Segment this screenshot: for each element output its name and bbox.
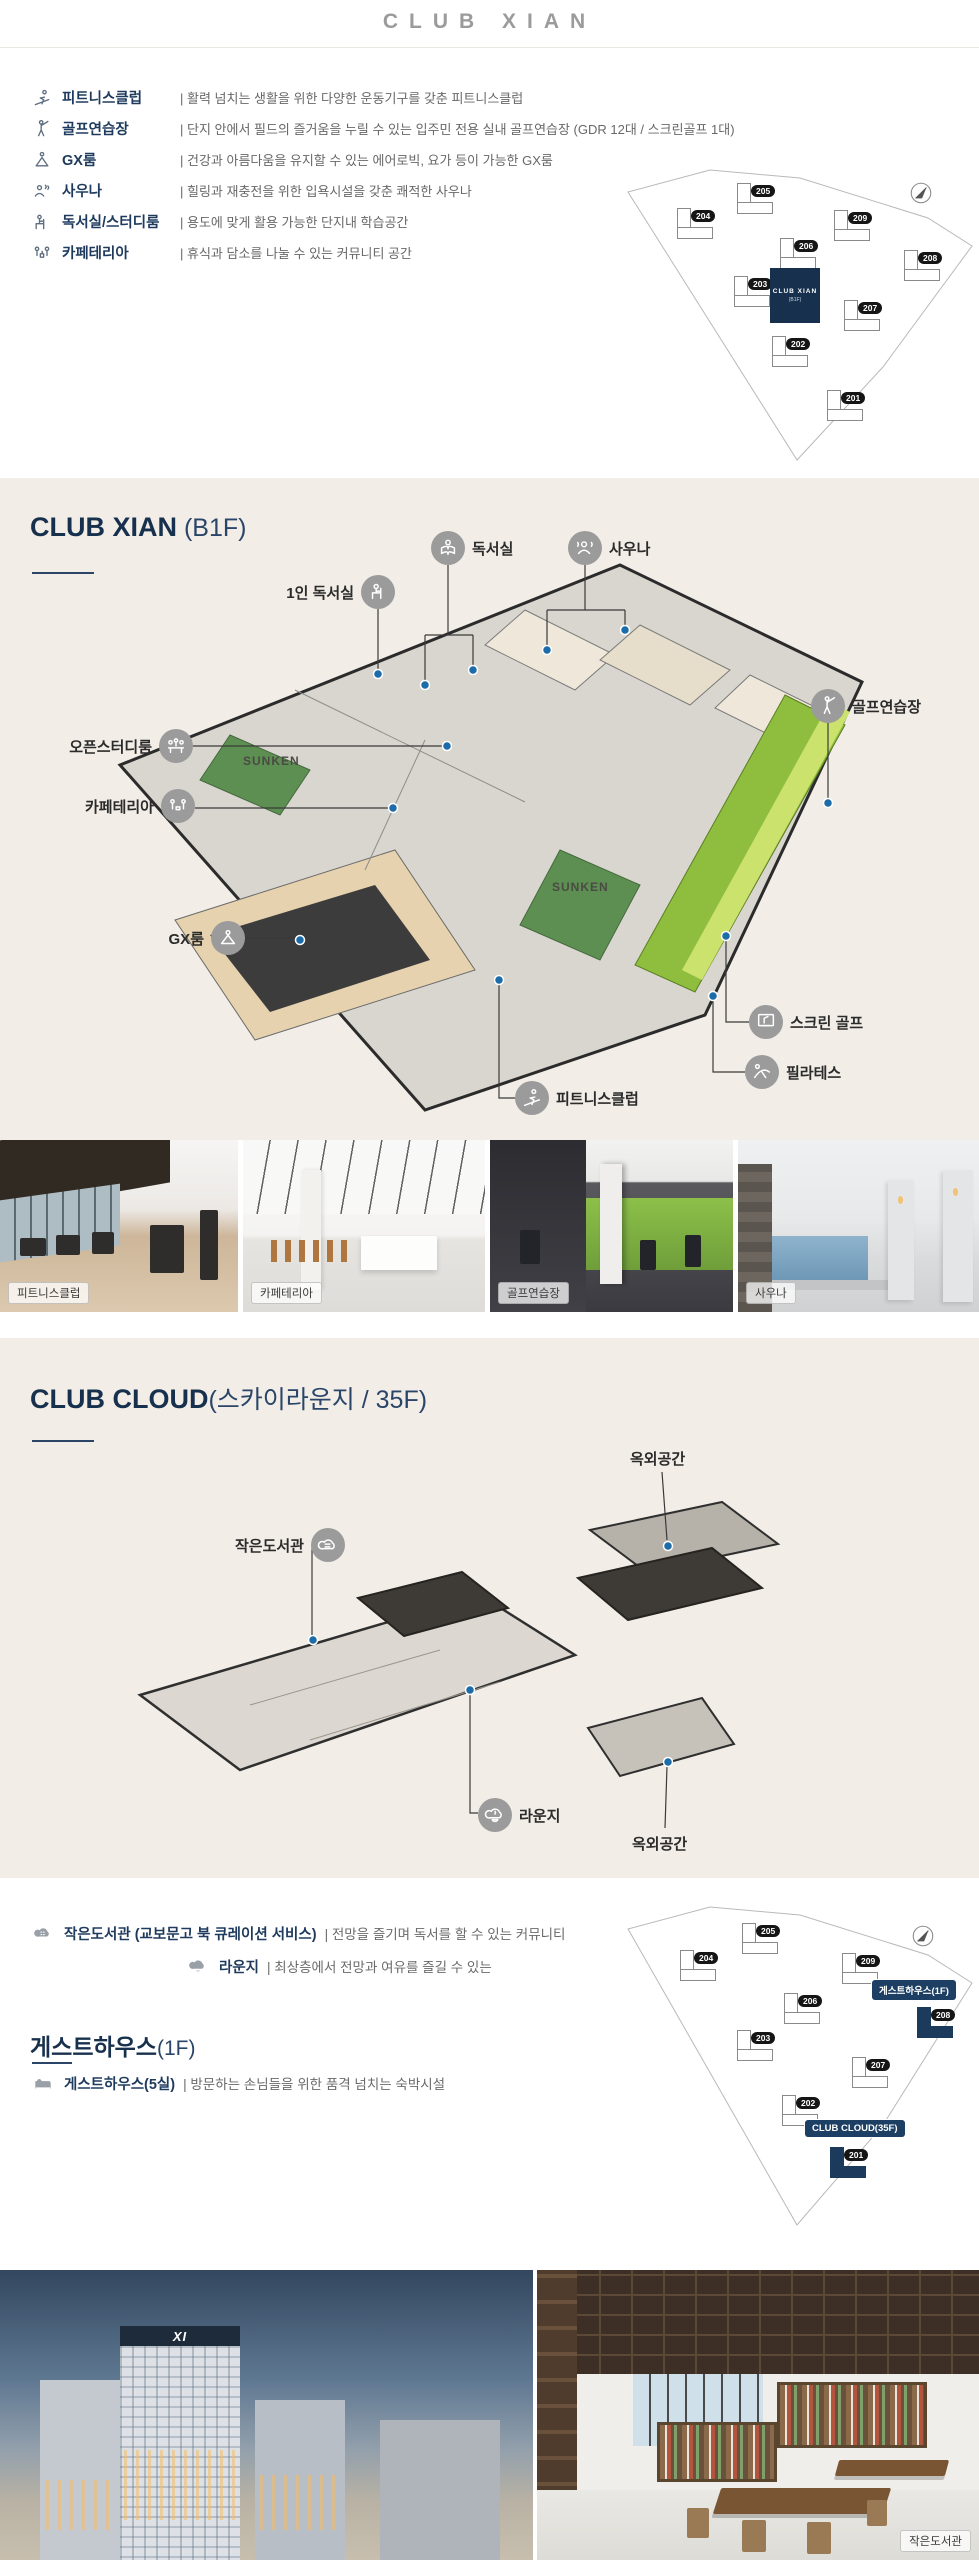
- info-label: 라운지: [219, 1956, 259, 1977]
- building-marker: 209: [832, 210, 878, 242]
- club-block-label: CLUB XIAN: [773, 288, 817, 295]
- photo-caption: 작은도서관: [900, 2530, 971, 2552]
- coffered-ceiling: [537, 2270, 979, 2374]
- info-desc: | 최상층에서 전망과 여유를 즐길 수 있는: [267, 1956, 492, 1976]
- study-icon: [30, 211, 54, 233]
- golf-icon: [30, 118, 54, 140]
- title-underline: [32, 572, 94, 574]
- photo-caption: 카페테리아: [251, 1282, 322, 1304]
- yoga-icon: [30, 149, 54, 171]
- lounge-icon: [478, 1798, 512, 1832]
- photo-caption: 골프연습장: [498, 1282, 569, 1304]
- amenity-desc: | 용도에 맞게 활용 가능한 단지내 학습공간: [180, 212, 408, 231]
- amenity-desc: | 단지 안에서 필드의 즐거움을 누릴 수 있는 입주민 전용 실내 골프연습…: [180, 119, 735, 138]
- building-wing: [40, 2380, 120, 2560]
- callout-cafeteria: 카페테리아: [85, 789, 195, 823]
- fitness-icon: [30, 87, 54, 109]
- building-marker: 205: [735, 183, 781, 215]
- compass-icon: [910, 1923, 936, 1949]
- fitness-icon: [515, 1081, 549, 1115]
- callout-sauna: 사우나: [568, 531, 650, 565]
- callout-lounge: 라운지: [478, 1798, 560, 1832]
- section-title-main: 게스트하우스: [30, 2034, 157, 2060]
- gym-equipment: [150, 1225, 184, 1273]
- building-marker: 203: [735, 2030, 781, 2062]
- callout-screen-golf: 스크린 골프: [749, 1005, 863, 1039]
- callout-pilates: 필라테스: [745, 1055, 841, 1089]
- amenity-row-cafe: 카페테리아 | 휴식과 담소를 나눌 수 있는 커뮤니티 공간: [30, 237, 670, 268]
- lit-windows: [124, 2450, 236, 2520]
- photo-golf-range: 골프연습장: [490, 1140, 733, 1312]
- section-title-cloud: CLUB CLOUD(스카이라운지 / 35F): [30, 1380, 427, 1416]
- bookshelf: [657, 2422, 777, 2482]
- club-xian-block: CLUB XIAN (B1F): [770, 268, 820, 323]
- small-library-icon: [30, 1922, 56, 1944]
- building-marker: 204: [678, 1950, 724, 1982]
- amenity-desc: | 힐링과 재충전을 위한 입욕시설을 갖춘 쾌적한 사우나: [180, 181, 472, 200]
- amenity-row-study: 독서실/스터디룸 | 용도에 맞게 활용 가능한 단지내 학습공간: [30, 206, 670, 237]
- gym-equipment: [92, 1232, 114, 1254]
- building-marker: 204: [675, 208, 721, 240]
- tower-crown: XI: [120, 2326, 240, 2346]
- guesthouse-badge: 게스트하우스(1F): [872, 1980, 956, 2000]
- section-title-main: CLUB CLOUD: [30, 1384, 208, 1414]
- amenity-list: 피트니스클럽 | 활력 넘치는 생활을 위한 다양한 운동기구를 갖춘 피트니스…: [30, 82, 670, 268]
- cafe-icon: [30, 242, 54, 264]
- amenity-label: GX룸: [62, 149, 180, 170]
- sauna-icon: [30, 180, 54, 202]
- chair: [742, 2520, 766, 2552]
- info-row-guesthouse: 게스트하우스(5실) | 방문하는 손님들을 위한 품격 넘치는 숙박시설: [30, 2072, 445, 2094]
- bed-icon: [30, 2072, 56, 2094]
- photo-sauna: 사우나: [738, 1140, 979, 1312]
- partition-wall: [943, 1170, 973, 1302]
- building-marker: 207: [850, 2057, 896, 2089]
- xi-logo: XI: [173, 2329, 187, 2344]
- page-title: CLUB XIAN: [0, 10, 979, 34]
- label-outdoor-bottom: 옥외공간: [632, 1833, 687, 1854]
- section-title-main: CLUB XIAN: [30, 512, 177, 542]
- club-block-sub: (B1F): [789, 297, 802, 303]
- section-title-sub: (B1F): [177, 514, 246, 542]
- section-title-sub: (1F): [157, 2037, 196, 2060]
- callout-fitness: 피트니스클럽: [515, 1081, 639, 1115]
- pilates-icon: [745, 1055, 779, 1089]
- photo-caption: 피트니스클럽: [8, 1282, 89, 1304]
- chair: [807, 2522, 831, 2554]
- pillar: [301, 1170, 321, 1290]
- sitemap-club-xian: 205 204 209 206 208 203 CLUB XIAN (B1F) …: [620, 168, 978, 480]
- building-marker: 207: [842, 300, 888, 332]
- title-underline: [32, 1440, 94, 1442]
- info-label: 작은도서관 (교보문고 북 큐레이션 서비스): [64, 1923, 317, 1944]
- photo-caption: 사우나: [746, 1282, 796, 1304]
- amenity-label: 사우나: [62, 180, 180, 201]
- photo-building-exterior: XI: [0, 2270, 533, 2560]
- floorplan-b1f: [95, 540, 885, 1140]
- floorplan-cloud: [110, 1440, 830, 1860]
- info-desc: | 방문하는 손님들을 위한 품격 넘치는 숙박시설: [183, 2073, 445, 2093]
- site-boundary: [620, 168, 978, 480]
- golf-range-icon: [811, 689, 845, 723]
- amenity-label: 골프연습장: [62, 118, 180, 139]
- amenity-label: 독서실/스터디룸: [62, 211, 180, 232]
- wall-lamp: [953, 1188, 958, 1196]
- section-title-guesthouse: 게스트하우스(1F): [30, 2028, 195, 2062]
- photo-fitness: 피트니스클럽: [0, 1140, 238, 1312]
- lounge-icon: [185, 1955, 211, 1977]
- building-marker: 205: [740, 1923, 786, 1955]
- bookshelf: [777, 2382, 927, 2448]
- building-marker: 206: [782, 1993, 828, 2025]
- gym-equipment: [20, 1238, 46, 1256]
- section-title-sub: (스카이라운지 / 35F): [208, 1386, 427, 1414]
- club-cloud-badge: CLUB CLOUD(35F): [805, 2120, 905, 2137]
- info-row-library: 작은도서관 (교보문고 북 큐레이션 서비스) | 전망을 즐기며 독서를 할 …: [30, 1922, 565, 1944]
- amenity-row-fitness: 피트니스클럽 | 활력 넘치는 생활을 위한 다양한 운동기구를 갖춘 피트니스…: [30, 82, 670, 113]
- building-marker-highlight: 208: [915, 2007, 961, 2039]
- building-tower: XI: [120, 2326, 240, 2560]
- golf-bay: [640, 1240, 656, 1270]
- compass-icon: [908, 180, 934, 206]
- table: [835, 2460, 949, 2476]
- callout-reading-room: 독서실: [431, 531, 513, 565]
- lit-windows: [260, 2475, 340, 2530]
- callout-gx-room: GX룸: [169, 921, 245, 955]
- callout-single-reading: 1인 독서실: [286, 575, 395, 609]
- gym-equipment: [56, 1235, 80, 1255]
- amenity-label: 피트니스클럽: [62, 87, 180, 108]
- title-underline: [32, 2062, 72, 2064]
- photo-small-library: 작은도서관: [537, 2270, 979, 2560]
- building-marker: 202: [770, 336, 816, 368]
- amenity-row-gx: GX룸 | 건강과 아름다움을 유지할 수 있는 에어로빅, 요가 등이 가능한…: [30, 144, 670, 175]
- gx-room-icon: [211, 921, 245, 955]
- small-library-icon: [311, 1528, 345, 1562]
- cafe-counter: [361, 1236, 437, 1270]
- section-title-b1f: CLUB XIAN (B1F): [30, 512, 246, 543]
- amenity-label: 카페테리아: [62, 242, 180, 263]
- amenity-row-sauna: 사우나 | 힐링과 재충전을 위한 입욕시설을 갖춘 쾌적한 사우나: [30, 175, 670, 206]
- photo-cafeteria: 카페테리아: [243, 1140, 485, 1312]
- single-reading-icon: [361, 575, 395, 609]
- info-label: 게스트하우스(5실): [64, 2073, 175, 2094]
- sunken-label: SUNKEN: [552, 880, 609, 894]
- cafe-chairs: [271, 1240, 351, 1262]
- chair: [867, 2500, 887, 2526]
- building-marker-highlight: 201: [828, 2147, 874, 2179]
- reading-room-icon: [431, 531, 465, 565]
- label-outdoor-top: 옥외공간: [630, 1448, 685, 1469]
- gym-equipment: [200, 1210, 218, 1280]
- info-desc: | 전망을 즐기며 독서를 할 수 있는 커뮤니티: [325, 1923, 566, 1943]
- pillar: [600, 1164, 622, 1284]
- table: [713, 2488, 891, 2514]
- sunken-label: SUNKEN: [243, 754, 300, 768]
- building-wing: [380, 2420, 500, 2560]
- screen-golf-icon: [749, 1005, 783, 1039]
- callout-small-library: 작은도서관: [235, 1528, 345, 1562]
- golf-bay: [520, 1230, 540, 1264]
- callout-golf-range: 골프연습장: [811, 689, 921, 723]
- divider: [0, 47, 979, 48]
- cafeteria-icon: [161, 789, 195, 823]
- building-marker: 201: [825, 390, 871, 422]
- amenity-desc: | 활력 넘치는 생활을 위한 다양한 운동기구를 갖춘 피트니스클럽: [180, 88, 523, 107]
- lit-windows: [46, 2480, 114, 2530]
- building-marker: 206: [778, 238, 824, 270]
- amenity-desc: | 건강과 아름다움을 유지할 수 있는 에어로빅, 요가 등이 가능한 GX룸: [180, 150, 553, 169]
- page: CLUB XIAN 피트니스클럽 | 활력 넘치는 생활을 위한 다양한 운동기…: [0, 0, 979, 2560]
- info-row-lounge: 라운지 | 최상층에서 전망과 여유를 즐길 수 있는: [185, 1955, 492, 1977]
- bath-pool: [772, 1236, 868, 1280]
- amenity-row-golf: 골프연습장 | 단지 안에서 필드의 즐거움을 누릴 수 있는 입주민 전용 실…: [30, 113, 670, 144]
- golf-bay: [685, 1235, 701, 1267]
- callout-open-study: 오픈스터디룸: [69, 729, 193, 763]
- sitemap-guesthouse-cloud: 205 204 209 게스트하우스(1F) 206 208 203 207 2…: [620, 1895, 978, 2270]
- amenity-desc: | 휴식과 담소를 나눌 수 있는 커뮤니티 공간: [180, 243, 412, 262]
- chair: [687, 2508, 709, 2538]
- building-marker: 208: [902, 250, 948, 282]
- open-study-icon: [159, 729, 193, 763]
- wall-lamp: [898, 1196, 903, 1204]
- sauna-icon: [568, 531, 602, 565]
- ceiling-decor: [243, 1140, 485, 1214]
- site-boundary: [620, 1895, 978, 2270]
